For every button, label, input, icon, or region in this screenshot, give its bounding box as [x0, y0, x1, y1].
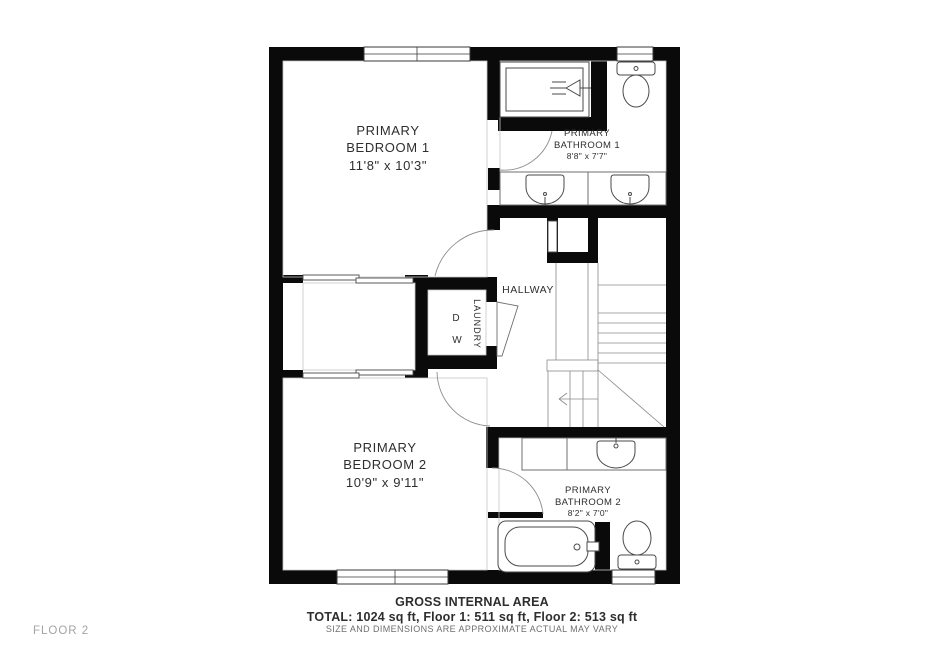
floor-label: FLOOR 2: [33, 625, 89, 637]
bathroom1-name-line1: PRIMARY: [564, 128, 610, 139]
window-bathroom1: [617, 47, 653, 61]
door-bathroom1: [500, 131, 552, 170]
hallway-label: HALLWAY: [502, 284, 554, 296]
disclaimer-text: SIZE AND DIMENSIONS ARE APPROXIMATE ACTU…: [326, 624, 618, 634]
bathroom2-name-line1: PRIMARY: [565, 485, 611, 496]
closet-doors-bottom: [303, 370, 413, 378]
floor-plan-page: PRIMARY BEDROOM 1 11'8" x 10'3" PRIMARY …: [0, 0, 950, 650]
bathroom2-dimensions: 8'2" x 7'0": [568, 508, 608, 518]
door-bedroom2: [437, 372, 490, 426]
door-laundry: [497, 302, 518, 356]
bedroom1-dimensions: 11'8" x 10'3": [349, 158, 427, 173]
bedroom2-name-line1: PRIMARY: [353, 440, 416, 455]
label-bedroom1: PRIMARY BEDROOM 1 11'8" x 10'3": [346, 123, 429, 173]
window-bathroom2: [612, 570, 655, 584]
gross-internal-area-title: GROSS INTERNAL AREA: [395, 595, 549, 609]
stairs-down-arrow: [559, 393, 598, 405]
door-bedroom1: [435, 230, 494, 276]
floor-plan-svg: PRIMARY BEDROOM 1 11'8" x 10'3" PRIMARY …: [0, 0, 950, 650]
bedroom1-name-line2: BEDROOM 1: [346, 140, 429, 155]
bathroom1-dimensions: 8'8" x 7'7": [567, 151, 607, 161]
toilet-bathroom2: [618, 521, 656, 569]
door-bathroom2: [492, 468, 543, 514]
dryer-label: D: [452, 313, 459, 324]
bathroom2-name-line2: BATHROOM 2: [555, 497, 621, 508]
linen-closet-door: [548, 221, 557, 252]
toilet-bathroom1: [617, 62, 655, 107]
window-bedroom1: [364, 47, 470, 61]
shower: [500, 62, 591, 117]
area-totals: TOTAL: 1024 sq ft, Floor 1: 511 sq ft, F…: [307, 610, 638, 624]
vanity-bathroom1: [500, 172, 666, 205]
label-bedroom2: PRIMARY BEDROOM 2 10'9" x 9'11": [343, 440, 426, 490]
label-bathroom2: PRIMARY BATHROOM 2 8'2" x 7'0": [555, 485, 621, 518]
bathtub: [498, 521, 599, 572]
laundry-label: LAUNDRY: [472, 299, 482, 349]
bedroom1-name-line1: PRIMARY: [356, 123, 419, 138]
closet-doors-top: [303, 275, 413, 283]
washer-label: W: [452, 335, 462, 346]
footer-area-summary: GROSS INTERNAL AREA TOTAL: 1024 sq ft, F…: [307, 595, 638, 634]
stairs: [547, 263, 666, 427]
bedroom2-dimensions: 10'9" x 9'11": [346, 475, 424, 490]
label-bathroom1: PRIMARY BATHROOM 1 8'8" x 7'7": [554, 128, 620, 161]
bathroom1-name-line2: BATHROOM 1: [554, 140, 620, 151]
bedroom2-name-line2: BEDROOM 2: [343, 457, 426, 472]
vanity-bathroom2: [522, 438, 666, 470]
window-bedroom2: [337, 570, 448, 584]
